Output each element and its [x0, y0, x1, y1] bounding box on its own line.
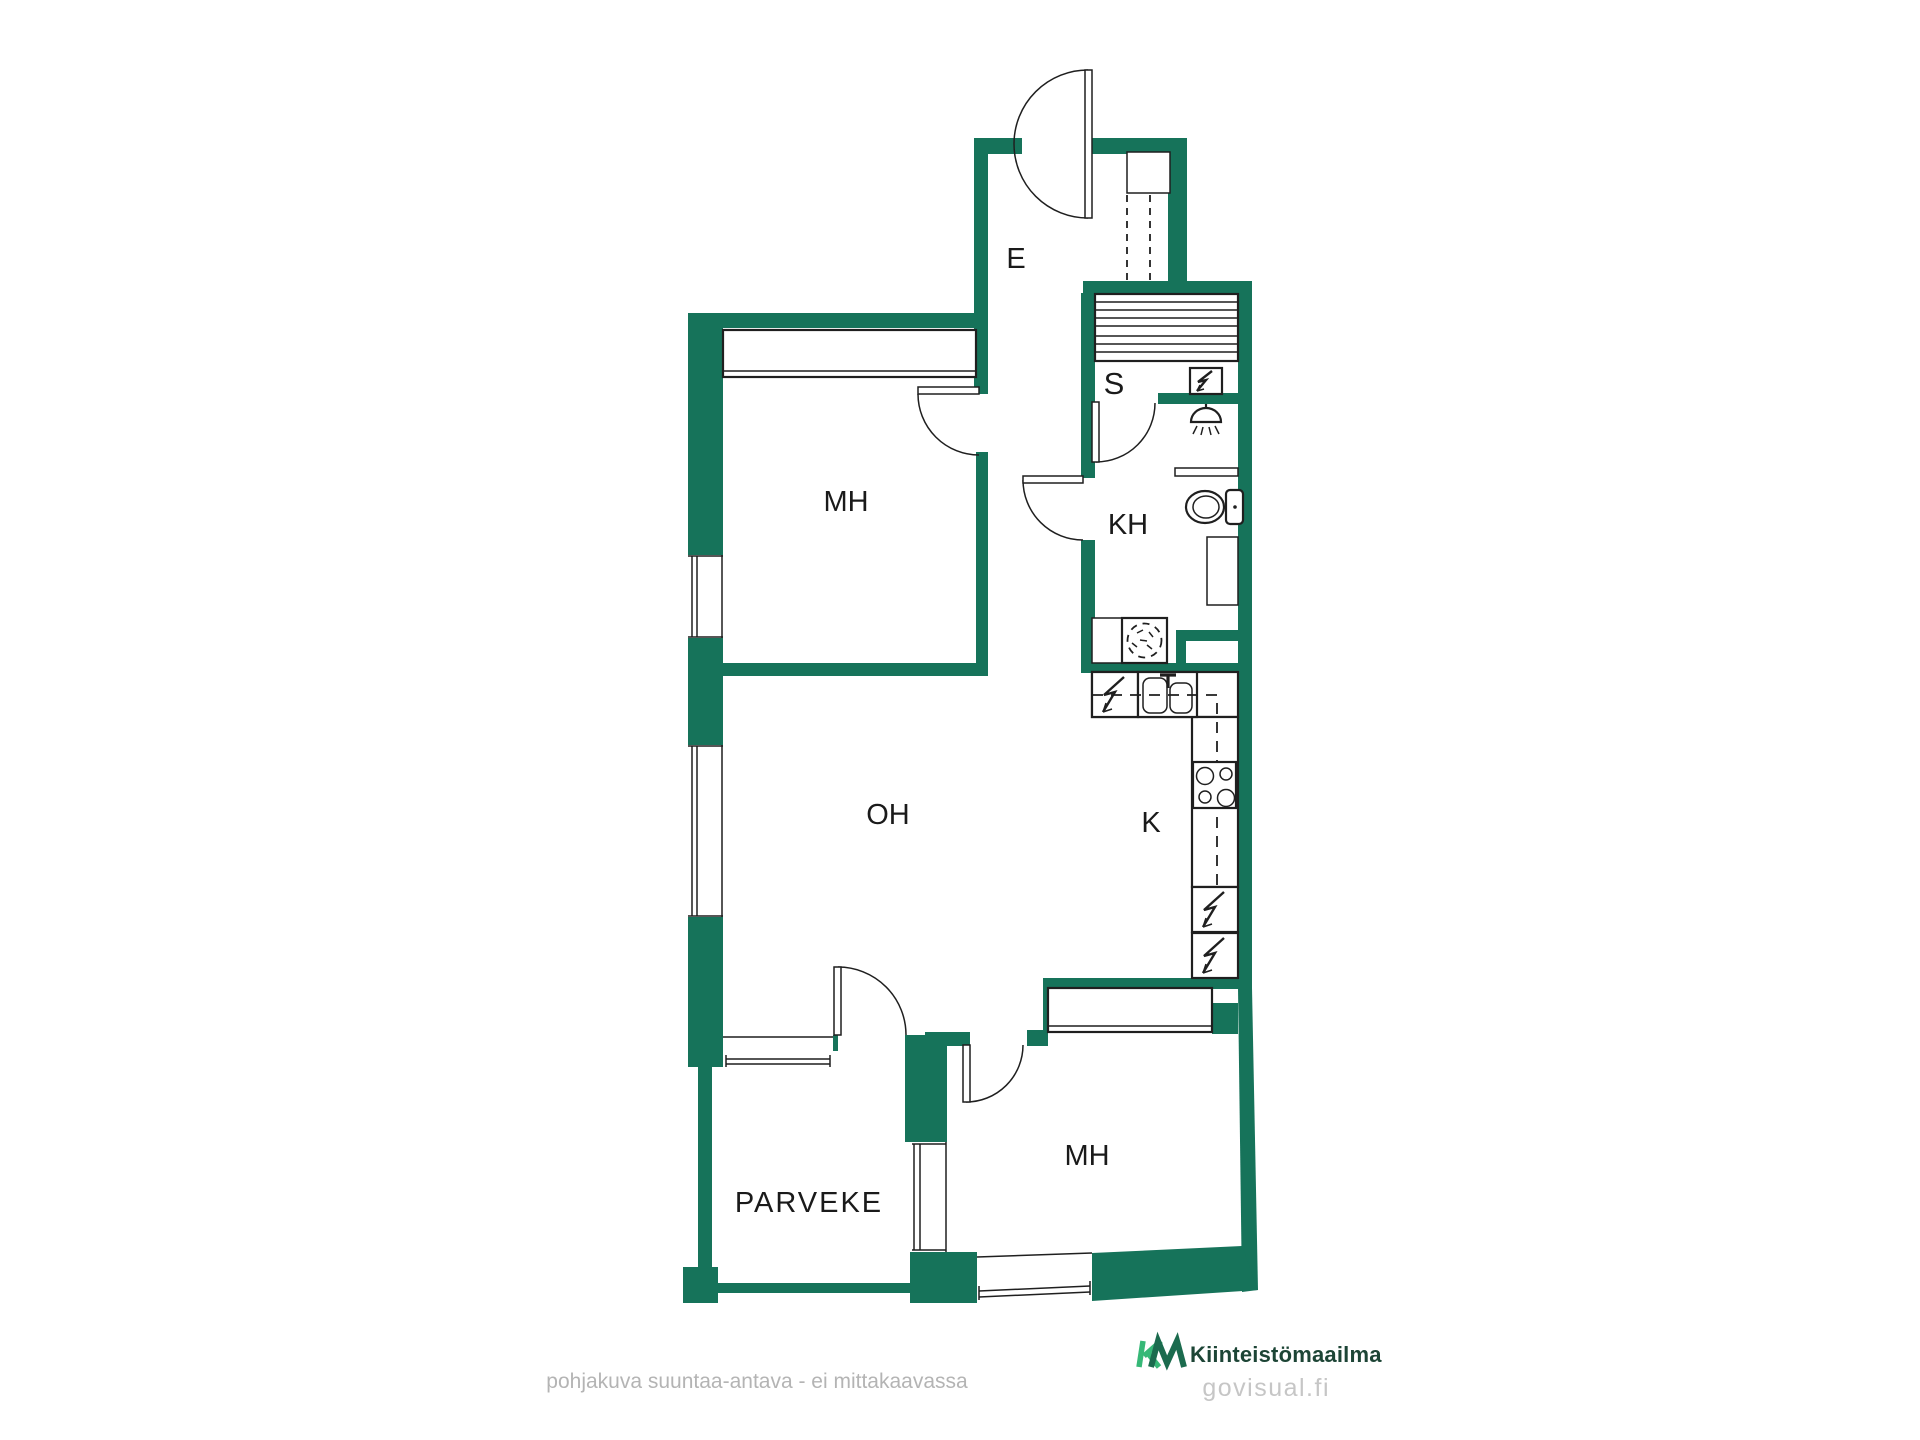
bathroom-cabinet	[1207, 537, 1238, 605]
wardrobe-bedroom-top	[723, 330, 976, 377]
watermark-text: govisual.fi	[1202, 1374, 1330, 1402]
label-kitchen: K	[1141, 807, 1161, 839]
window-bedroom-top-west	[688, 555, 723, 638]
balcony-door	[834, 967, 906, 1035]
entrance-door	[1014, 70, 1092, 218]
label-bedroom-top: MH	[823, 486, 868, 518]
sauna-benches	[1095, 294, 1238, 361]
floorplan-page: E S KH MH OH K MH PARVEKE pohjakuva suun…	[0, 0, 1920, 1440]
label-bedroom-bottom: MH	[1064, 1140, 1109, 1172]
wall-living-divider	[723, 663, 988, 676]
walls	[683, 138, 1258, 1303]
toilet-icon	[1186, 490, 1243, 524]
corner-block	[910, 1252, 977, 1303]
wall-west-exterior	[688, 638, 723, 745]
doors	[834, 70, 1155, 1102]
wall	[976, 452, 988, 676]
freezer-icon	[1192, 933, 1238, 978]
label-sauna: S	[1104, 366, 1125, 401]
wall	[1027, 1030, 1048, 1046]
window-bedroom-bottom-south	[977, 1252, 1092, 1303]
balcony-rail-south	[708, 1283, 910, 1293]
footer: pohjakuva suuntaa-antava - ei mittakaava…	[546, 1341, 1382, 1402]
washing-machine-icon	[1092, 618, 1167, 663]
bedroom-top-door	[918, 387, 979, 455]
balcony-rail-west	[698, 1067, 712, 1293]
label-balcony: PARVEKE	[735, 1187, 883, 1219]
bathroom-shelf	[1175, 468, 1238, 476]
wall	[1176, 630, 1238, 641]
window-bedroom-bottom-west	[912, 1142, 947, 1252]
wall	[1238, 285, 1252, 988]
stove-icon	[1193, 762, 1236, 808]
wall	[925, 1032, 970, 1046]
disclaimer-text: pohjakuva suuntaa-antava - ei mittakaava…	[546, 1370, 968, 1393]
label-bathroom: KH	[1108, 509, 1148, 541]
window-living-balcony	[723, 1035, 833, 1067]
label-living-room: OH	[866, 799, 910, 831]
window-living-west	[688, 745, 723, 917]
bedroom-bottom-door	[963, 1045, 1023, 1102]
km-logo: Kiinteistömaailma	[1139, 1341, 1382, 1367]
brand-text: Kiinteistömaailma	[1190, 1342, 1382, 1367]
wall	[1168, 138, 1187, 293]
wall-bedroom-top-north	[688, 313, 976, 328]
wardrobe-bedroom-bottom	[1048, 988, 1212, 1032]
wall-notch	[1212, 1003, 1238, 1034]
duct-shaft	[1127, 152, 1170, 283]
wall	[1083, 281, 1252, 293]
wall-west-exterior	[688, 313, 723, 555]
fridge-icon	[1192, 887, 1238, 932]
label-entrance: E	[1006, 243, 1025, 275]
sauna-heater-icon	[1190, 368, 1222, 394]
wall-balcony-pier	[905, 1035, 947, 1142]
floor-plan: E S KH MH OH K MH PARVEKE pohjakuva suun…	[0, 0, 1920, 1440]
shower-icon	[1191, 404, 1221, 435]
wall-west-exterior	[688, 917, 723, 1067]
bathroom-door	[1023, 476, 1083, 540]
sauna-door	[1092, 402, 1155, 462]
wall-south-exterior	[1092, 1246, 1258, 1301]
